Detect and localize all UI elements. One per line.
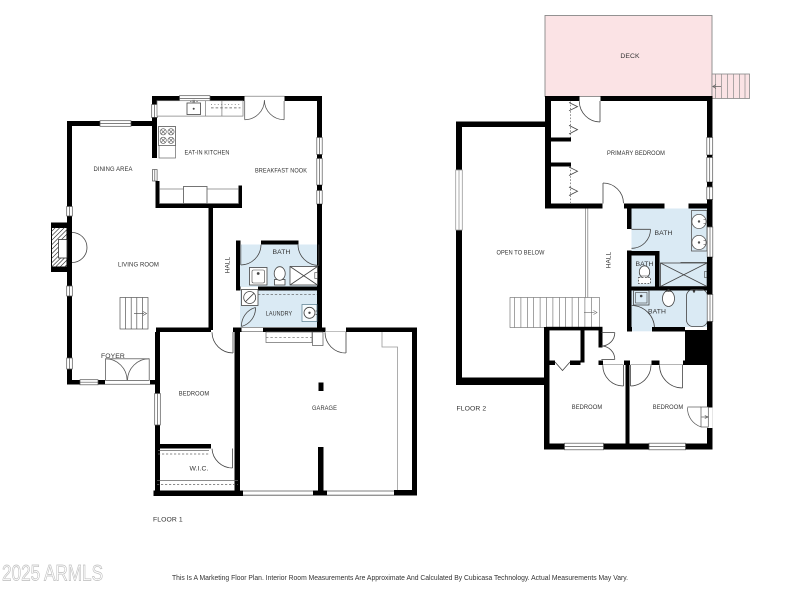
svg-text:LAUNDRY: LAUNDRY: [266, 311, 293, 318]
svg-text:FOYER: FOYER: [101, 353, 125, 360]
svg-text:FLOOR 2: FLOOR 2: [457, 406, 487, 413]
svg-text:BEDROOM: BEDROOM: [572, 404, 603, 411]
svg-text:BREAKFAST NOOK: BREAKFAST NOOK: [255, 168, 307, 175]
svg-text:2025 ARMLS: 2025 ARMLS: [2, 561, 103, 586]
svg-text:BATH: BATH: [654, 230, 672, 237]
svg-text:HALL: HALL: [606, 251, 613, 268]
svg-text:This Is A Marketing Floor Plan: This Is A Marketing Floor Plan. Interior…: [172, 575, 628, 582]
svg-text:BEDROOM: BEDROOM: [653, 404, 684, 411]
svg-text:BATH: BATH: [648, 309, 666, 316]
svg-text:BATH: BATH: [272, 249, 290, 256]
svg-text:DINING AREA: DINING AREA: [94, 166, 133, 173]
svg-text:HALL: HALL: [225, 256, 232, 273]
svg-text:DECK: DECK: [620, 53, 640, 60]
svg-text:BATH: BATH: [635, 261, 653, 268]
svg-text:FLOOR 1: FLOOR 1: [153, 517, 183, 524]
svg-text:OPEN TO BELOW: OPEN TO BELOW: [497, 250, 545, 257]
svg-text:LIVING ROOM: LIVING ROOM: [118, 262, 159, 269]
svg-text:BEDROOM: BEDROOM: [179, 391, 210, 398]
svg-text:W.I.C.: W.I.C.: [189, 466, 208, 473]
svg-text:GARAGE: GARAGE: [312, 405, 337, 412]
svg-text:EAT-IN KITCHEN: EAT-IN KITCHEN: [185, 150, 230, 157]
svg-text:PRIMARY BEDROOM: PRIMARY BEDROOM: [607, 150, 665, 157]
